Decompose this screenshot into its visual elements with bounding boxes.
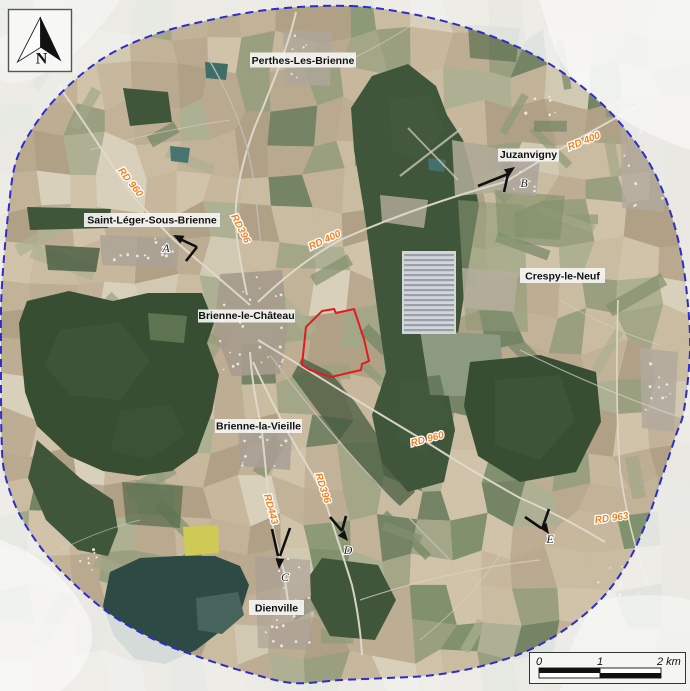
svg-text:0: 0 xyxy=(536,656,543,668)
svg-text:Dienville: Dienville xyxy=(255,603,298,615)
svg-text:2 km: 2 km xyxy=(656,656,681,668)
svg-text:C: C xyxy=(281,570,290,584)
svg-text:A: A xyxy=(161,241,170,255)
svg-text:Crespy-le-Neuf: Crespy-le-Neuf xyxy=(525,271,600,283)
svg-text:Brienne-le-Château: Brienne-le-Château xyxy=(198,310,294,322)
svg-text:E: E xyxy=(545,532,554,546)
svg-text:Juzanvigny: Juzanvigny xyxy=(500,149,557,161)
svg-text:D: D xyxy=(343,543,353,557)
svg-text:Saint-Léger-Sous-Brienne: Saint-Léger-Sous-Brienne xyxy=(87,215,217,227)
svg-text:Brienne-la-Vieille: Brienne-la-Vieille xyxy=(216,421,301,433)
svg-text:1: 1 xyxy=(597,656,603,668)
svg-text:N: N xyxy=(36,51,48,68)
svg-text:Perthes-Les-Brienne: Perthes-Les-Brienne xyxy=(252,55,355,67)
svg-text:B: B xyxy=(520,176,528,190)
